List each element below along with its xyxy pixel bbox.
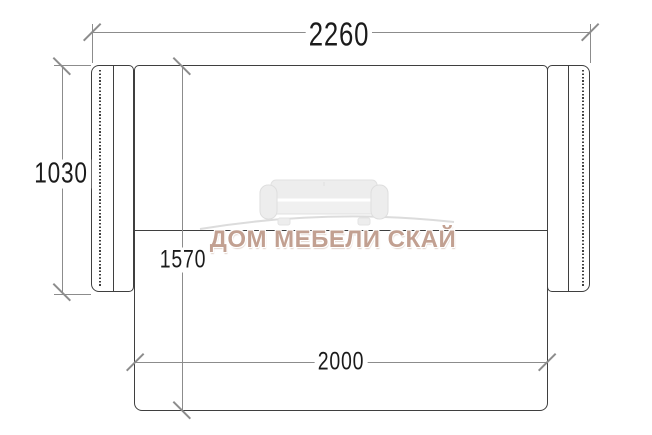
right-armrest-seam-line <box>568 66 569 291</box>
dim-bed-width-value: 2000 <box>315 350 368 375</box>
dim-total-width-value: 2260 <box>306 18 373 51</box>
dim-unfolded-depth-line <box>182 65 183 412</box>
watermark-text: ДОМ МЕБЕЛИ СКАЙ <box>210 226 457 254</box>
extension-line <box>54 294 91 295</box>
dimension-diagram: 2260 1030 1570 2000 ДОМ МЕБЕЛИ СКАЙ <box>0 0 652 435</box>
right-armrest <box>547 65 590 292</box>
left-armrest <box>91 65 134 292</box>
right-armrest-stitch-line <box>582 70 584 287</box>
left-armrest-stitch-line <box>99 70 101 287</box>
left-armrest-seam-line <box>113 66 114 291</box>
sofa-icon <box>258 179 390 226</box>
dim-sofa-depth-value: 1030 <box>31 160 91 189</box>
dim-unfolded-depth-value: 1570 <box>157 248 210 273</box>
